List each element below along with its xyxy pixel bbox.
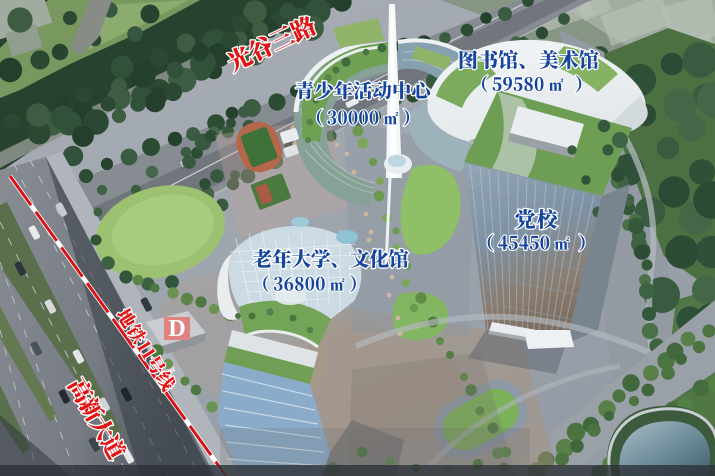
svg-text:D: D (168, 316, 185, 342)
